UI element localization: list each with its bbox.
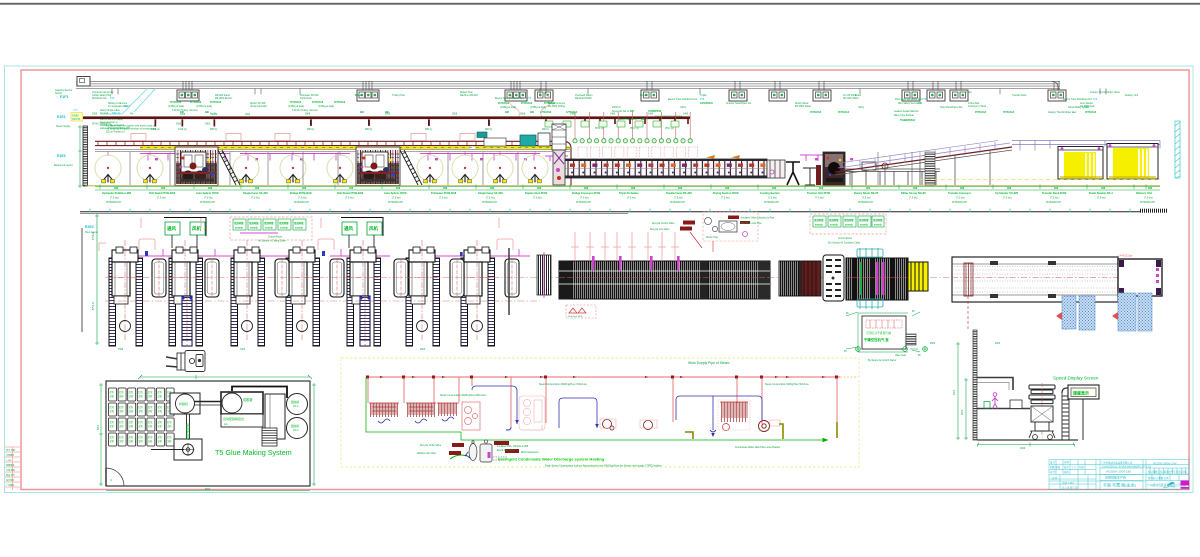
svg-text:WJ250-2500-2-W: WJ250-2500-2-W: [1153, 462, 1177, 466]
svg-text:(1.85kg at load): (1.85kg at load): [196, 105, 212, 108]
svg-text:通风: 通风: [344, 225, 353, 232]
svg-text:吊顶风管: 吊顶风管: [234, 221, 244, 225]
svg-text:998: 998: [584, 187, 589, 190]
svg-text:Auto Stacker: Auto Stacker: [1080, 102, 1093, 105]
svg-text:Triple Drum: Triple Drum: [300, 97, 312, 100]
svg-text:Dry Section Air Condition Cabi: Dry Section Air Condition Cabin: [828, 242, 861, 245]
svg-text:(7.5 kw): (7.5 kw): [157, 197, 166, 200]
svg-text:Boiler Equipment: Boiler Equipment: [521, 451, 539, 454]
svg-text:05TB-BA8: 05TB-BA8: [334, 101, 346, 104]
svg-text:Steam Supply: Steam Supply: [56, 125, 71, 128]
svg-text:xxxx中: xxxx中: [280, 226, 288, 230]
svg-text:(7.5 kw): (7.5 kw): [486, 197, 495, 200]
svg-text:Canopy Thermit/Upper Home: Canopy Thermit/Upper Home: [1090, 91, 1121, 94]
svg-text:5YZ: 5YZ: [527, 98, 532, 100]
svg-text:阶段标记 重量 比例: 阶段标记 重量 比例: [1148, 476, 1169, 480]
svg-text:05YL (1): 05YL (1): [665, 128, 674, 130]
svg-text:GUANGZHOU JUNDA MACHINERY CO.,: GUANGZHOU JUNDA MACHINERY CO.,LTD: [1102, 466, 1151, 469]
svg-text:998 (1): 998 (1): [365, 129, 373, 131]
svg-text:通风: 通风: [167, 225, 176, 232]
svg-text:吊顶风管: 吊顶风管: [844, 218, 854, 222]
svg-text:储胶罐: 储胶罐: [291, 400, 299, 404]
svg-text:not construct the grand minimu: not construct the grand minimum oil cont…: [106, 128, 157, 131]
svg-text:Electro Trace Distributor box: Electro Trace Distributor box: [1063, 98, 1093, 101]
svg-text:12TB-BA8: 12TB-BA8: [540, 111, 552, 114]
svg-text:Blowdown Link Pipe: Blowdown Link Pipe: [741, 223, 762, 225]
svg-text:Auto Splicer 05YB: Auto Splicer 05YB: [384, 191, 407, 195]
svg-text:TSHEEPRS16: TSHEEPRS16: [900, 120, 916, 122]
svg-text:4000: 4000: [995, 343, 1001, 345]
svg-text:瓦楞纸板生产线: 瓦楞纸板生产线: [1105, 475, 1126, 480]
svg-text:1982: 1982: [176, 124, 182, 126]
svg-text:05TB-BA8: 05TB-BA8: [838, 111, 850, 114]
svg-text:0.45 Per Trolley I Service: 0.45 Per Trolley I Service: [292, 109, 318, 112]
svg-text:Trace: Trace: [966, 91, 973, 94]
svg-text:Intelligent Condensate Water D: Intelligent Condensate Water Discharge s…: [498, 457, 605, 462]
svg-text:998: 998: [1101, 187, 1106, 190]
svg-text:Auto Splicer 05YB: Auto Splicer 05YB: [196, 191, 219, 195]
svg-text:mobile Safety Plug: mobile Safety Plug: [92, 94, 112, 97]
svg-text:校对: 校对: [1064, 465, 1069, 469]
svg-text:Recycle Control Valve: Recycle Control Valve: [652, 222, 675, 225]
svg-text:998: 998: [349, 187, 354, 190]
svg-text:05TB-BA8: 05TB-BA8: [1003, 111, 1015, 114]
svg-text:(4 kw) Automatic: (4 kw) Automatic: [250, 105, 268, 108]
svg-text:Control Room: Control Room: [838, 237, 852, 240]
svg-text:广州市骏达包装设备有限公司: 广州市骏达包装设备有限公司: [1101, 461, 1133, 465]
svg-text:5YZ: 5YZ: [700, 99, 705, 101]
svg-text:5YZ: 5YZ: [922, 99, 927, 101]
svg-text:05TB-BA8: 05TB-BA8: [498, 102, 510, 105]
svg-text:998 (1): 998 (1): [542, 129, 550, 131]
svg-text:Transfer Deck: Transfer Deck: [1012, 94, 1027, 97]
svg-text:N25YB: N25YB: [72, 117, 80, 121]
svg-text:Roll Stand 05YB-BA8: Roll Stand 05YB-BA8: [337, 191, 364, 195]
svg-text:05TB-BA8: 05TB-BA8: [290, 101, 302, 104]
svg-text:(7.5 kw): (7.5 kw): [110, 197, 119, 200]
svg-text:12P&5P&18: 12P&5P&18: [700, 103, 713, 105]
svg-text:7000: 7000: [118, 349, 124, 351]
svg-text:05TB-BA8: 05TB-BA8: [312, 101, 324, 104]
svg-text:6500: 6500: [420, 349, 426, 351]
svg-text:会 签: 会 签: [1052, 476, 1058, 480]
svg-text:5200: 5200: [98, 424, 100, 430]
svg-text:Insulated Valve Chamber in Pip: Insulated Valve Chamber in Pipe: [741, 217, 775, 220]
svg-text:Air Suction in Ceiling Cabin: Air Suction in Ceiling Cabin: [258, 240, 287, 243]
svg-text:Brake: Brake: [640, 94, 647, 97]
svg-text:Steam Trap Set of: Steam Trap Set of: [618, 118, 637, 121]
svg-text:Duplex Glue: Duplex Glue: [460, 92, 473, 94]
svg-text:(7.5 kw): (7.5 kw): [345, 197, 354, 200]
svg-text:E1E1: E1E1: [57, 154, 66, 158]
svg-text:拌胶机: 拌胶机: [179, 401, 188, 406]
svg-text:设 计: 设 计: [1050, 460, 1056, 464]
svg-text:风机: 风机: [369, 225, 378, 232]
svg-text:05TB-BA8 25Y: 05TB-BA8 25Y: [294, 201, 310, 204]
svg-text:Steam Consumption 600Kg/Hour 5: Steam Consumption 600Kg/Hour 50m/Line: [765, 383, 810, 386]
svg-text:05TB-BA8 25Y: 05TB-BA8 25Y: [1140, 201, 1156, 204]
svg-text:E1E1: E1E1: [57, 115, 66, 119]
svg-text:Canopy Thermit/Upper later: Canopy Thermit/Upper later: [1048, 111, 1077, 114]
svg-text:xxxx中: xxxx中: [235, 226, 243, 230]
svg-text:1440 (1): 1440 (1): [178, 129, 187, 131]
svg-text:Wire Safety Service: Wire Safety Service: [898, 102, 919, 105]
svg-text:05YB CHMWBFAL: 05YB CHMWBFAL: [92, 123, 112, 126]
svg-text:(7.5 kw): (7.5 kw): [392, 197, 401, 200]
svg-text:xxxx中: xxxx中: [845, 223, 853, 227]
svg-text:998: 998: [819, 187, 824, 190]
svg-text:Traction Unit 05YB: Traction Unit 05YB: [807, 191, 830, 195]
svg-text:(1.85kg at load): (1.85kg at load): [288, 105, 304, 108]
svg-text:Roll Stand 05YB-BA8: Roll Stand 05YB-BA8: [149, 191, 176, 195]
svg-text:空压机 冷干机 储气罐: 空压机 冷干机 储气罐: [866, 331, 891, 335]
svg-text:Drying Section 05YB: Drying Section 05YB: [713, 191, 739, 195]
svg-text:05TB-BA8 25Y: 05TB-BA8 25Y: [952, 201, 968, 204]
svg-text:Recycle Inlet Valve: Recycle Inlet Valve: [650, 228, 670, 231]
svg-text:No.2: No.2: [293, 428, 299, 432]
svg-text:998: 998: [396, 187, 401, 190]
svg-text:WJ250K-2500-180: WJ250K-2500-180: [1106, 470, 1131, 474]
svg-text:E2E2: E2E2: [85, 225, 94, 229]
svg-text:380V: 380V: [124, 105, 130, 108]
svg-text:998 (1): 998 (1): [307, 129, 315, 131]
svg-text:(7.5 kw): (7.5 kw): [1003, 197, 1012, 200]
svg-text:235mm?: 235mm?: [612, 107, 622, 109]
svg-text:2868: 2868: [385, 114, 391, 116]
svg-text:Up Stacker US-320: Up Stacker US-320: [995, 191, 1019, 195]
svg-text:Rotary Shear RS-25: Rotary Shear RS-25: [854, 191, 879, 195]
svg-text:成胶罐: 成胶罐: [243, 397, 253, 402]
svg-text:Flash Steam Consumption is abo: Flash Steam Consumption is about 4kg,pro…: [545, 465, 662, 468]
svg-text:Bridge Conveyor: Bridge Conveyor: [548, 102, 565, 105]
svg-text:(7.5 kw): (7.5 kw): [439, 197, 448, 200]
svg-text:Valve Seat: Valve Seat: [895, 354, 906, 357]
svg-text:Condensate Water Main Pipe Low: Condensate Water Main Pipe Lower Bracket: [735, 446, 781, 449]
svg-text:Single Facer SF-320: Single Facer SF-320: [478, 191, 503, 195]
svg-text:05TB-BA8 25Y: 05TB-BA8 25Y: [764, 201, 780, 204]
svg-text:吊顶风管: 吊顶风管: [294, 221, 304, 225]
svg-text:998 (1): 998 (1): [210, 129, 218, 131]
svg-text:(7.5 kw): (7.5 kw): [862, 197, 871, 200]
svg-text:吊顶风管: 吊顶风管: [279, 221, 289, 225]
svg-text:吊顶风管: 吊顶风管: [859, 218, 869, 222]
svg-text:标记处数 分区 更改文件号 签名 日期: 标记处数 分区 更改文件号 签名 日期: [1148, 470, 1187, 474]
svg-text:工 艺: 工 艺: [1071, 465, 1077, 469]
svg-text:Insulated 50th. Chloride is 99: Insulated 50th. Chloride is 998: [497, 445, 529, 448]
svg-text:吊顶风管: 吊顶风管: [249, 221, 259, 225]
svg-text:Speed Display Screen: Speed Display Screen: [1053, 376, 1099, 381]
svg-text:10 mm2: 10 mm2: [100, 113, 109, 115]
svg-text:05TB-BA8 25Y: 05TB-BA8 25Y: [858, 201, 874, 204]
svg-text:Rc ***: Rc ***: [210, 114, 216, 116]
svg-text:Overhead Steam: Overhead Steam: [575, 94, 592, 97]
svg-text:RS-2500 Spiral: RS-2500 Spiral: [795, 105, 811, 108]
svg-text:Double Facer DF-320: Double Facer DF-320: [666, 191, 692, 195]
svg-text:Down Stacker DS-1: Down Stacker DS-1: [1089, 191, 1113, 195]
svg-text:xxxx中: xxxx中: [860, 223, 868, 227]
svg-text:1085: 1085: [180, 114, 186, 116]
svg-text:998: 998: [255, 187, 260, 190]
svg-text:DN80: DN80: [72, 114, 79, 118]
svg-text:Insulation Note: the pipeline: Insulation Note: the pipeline only need …: [106, 125, 157, 128]
svg-text:(7.5 kw): (7.5 kw): [768, 197, 777, 200]
svg-text:998: 998: [161, 187, 166, 190]
svg-text:05TB-BA8 25Y: 05TB-BA8 25Y: [1046, 201, 1062, 204]
svg-text:Bridge Conveyor 05YB: Bridge Conveyor 05YB: [572, 191, 600, 195]
svg-text:Duplex Glue 05YB: Duplex Glue 05YB: [525, 191, 547, 195]
svg-text:5YZ: 5YZ: [1093, 99, 1098, 101]
svg-text:Incline Belt: Incline Belt: [968, 102, 980, 105]
svg-text:RS-2500 Electric: RS-2500 Electric: [215, 97, 233, 100]
svg-text:Distributor box: Distributor box: [92, 97, 108, 100]
svg-text:Trolley Hoist: Trolley Hoist: [392, 94, 405, 97]
svg-text:Conveyor (7.5kw): Conveyor (7.5kw): [968, 105, 986, 108]
svg-text:05TB-BA8 25Y: 05TB-BA8 25Y: [200, 201, 216, 204]
svg-text:998: 998: [725, 187, 730, 190]
svg-text:1985: 1985: [92, 114, 98, 116]
svg-text:Glue Unit 450L: Glue Unit 450L: [568, 315, 583, 318]
svg-text:(10m): (10m): [680, 107, 686, 109]
svg-text:AS-2500 Dual: AS-2500 Dual: [1080, 105, 1095, 108]
svg-text:998: 998: [866, 187, 871, 190]
svg-text:吊顶风管: 吊顶风管: [829, 218, 839, 222]
svg-text:5YZ: 5YZ: [110, 97, 115, 100]
svg-text:Work Supply Pipe of Steam: Work Supply Pipe of Steam: [688, 361, 730, 365]
svg-text:6000: 6000: [954, 389, 956, 395]
svg-text:998: 998: [114, 187, 119, 190]
svg-text:标准: 标准: [1079, 465, 1084, 469]
svg-text:风机: 风机: [192, 225, 201, 232]
svg-text:Transfer Deck 05YB: Transfer Deck 05YB: [1042, 191, 1066, 195]
svg-text:05TB-BA8 25Y: 05TB-BA8 25Y: [670, 201, 686, 204]
svg-text:Cut Off Knife: Cut Off Knife: [843, 94, 857, 97]
svg-text:Bridge 05YB-BA8: Bridge 05YB-BA8: [290, 191, 312, 195]
svg-text:998: 998: [960, 187, 965, 190]
svg-text:(7.5 kw): (7.5 kw): [956, 197, 965, 200]
svg-text:1093: 1093: [245, 114, 251, 116]
svg-text:2868: 2868: [520, 114, 526, 116]
svg-text:Brand Fuel in pot: Brand Fuel in pot: [497, 449, 515, 452]
svg-text:(7.5 kw): (7.5 kw): [298, 197, 307, 200]
svg-text:5750.00: 5750.00: [93, 231, 95, 240]
svg-text:No.1: No.1: [293, 404, 299, 408]
svg-text:(7.5 kw): (7.5 kw): [580, 197, 589, 200]
svg-text:1:100: 1:100: [6, 460, 12, 462]
svg-text:998: 998: [1148, 187, 1153, 190]
svg-text:xxxx中: xxxx中: [295, 226, 303, 230]
svg-text:(7.5 kw): (7.5 kw): [721, 197, 730, 200]
svg-text:(10m): (10m): [858, 107, 864, 109]
svg-text:7000: 7000: [240, 349, 246, 351]
svg-text:05TB-BA8 25Y: 05TB-BA8 25Y: [482, 201, 498, 204]
svg-text:共 1 张 第 1 张: 共 1 张 第 1 张: [1062, 486, 1078, 490]
svg-text:1480: 1480: [648, 114, 654, 116]
svg-text:1480: 1480: [610, 114, 616, 116]
svg-text:998: 998: [208, 187, 213, 190]
svg-text:Valve: Valve: [73, 110, 79, 112]
svg-text:速度显示: 速度显示: [1073, 390, 1089, 396]
svg-text:2500: 2500: [930, 343, 936, 345]
svg-text:05TB-BA8: 05TB-BA8: [210, 101, 222, 104]
svg-text:0.45 Per Trolley I Service: 0.45 Per Trolley I Service: [172, 109, 198, 112]
svg-text:Control Room: Control Room: [268, 236, 282, 239]
svg-text:制图 审核: 制图 审核: [1050, 465, 1061, 469]
svg-text:Delivery Unit: Delivery Unit: [1136, 191, 1152, 195]
svg-text:Preheater 05YB-BA8: Preheater 05YB-BA8: [431, 191, 457, 195]
svg-text:05TB-BA8: 05TB-BA8: [190, 101, 202, 104]
svg-text:05TB-BA8: 05TB-BA8: [975, 111, 987, 114]
svg-text:05TB-BA8 25Y: 05TB-BA8 25Y: [388, 201, 404, 204]
svg-text:xxxx中: xxxx中: [874, 223, 882, 227]
svg-text:比例 1:100: 比例 1:100: [1062, 481, 1074, 485]
svg-text:998 (1): 998 (1): [485, 129, 493, 131]
svg-text:05TB-BA8: 05TB-BA8: [1085, 111, 1097, 114]
svg-text:吊顶风管: 吊顶风管: [873, 218, 883, 222]
svg-text:xxxx中: xxxx中: [830, 223, 838, 227]
svg-text:998: 998: [443, 187, 448, 190]
svg-text:05TB-BA8 25Y: 05TB-BA8 25Y: [576, 201, 592, 204]
svg-text:Electro Trace Distributor box: Electro Trace Distributor box: [495, 97, 525, 100]
svg-text:998: 998: [1007, 187, 1012, 190]
svg-text:998: 998: [490, 187, 495, 190]
svg-text:998: 998: [678, 187, 683, 190]
svg-text:By-Series de Control Factor: By-Series de Control Factor: [868, 359, 897, 362]
svg-text:998: 998: [302, 187, 307, 190]
svg-text:(7.5 kw): (7.5 kw): [204, 197, 213, 200]
svg-text:Rotary Shear: Rotary Shear: [795, 102, 809, 105]
svg-text:Single Facer SF-320: Single Facer SF-320: [243, 191, 268, 195]
svg-text:T5 Glue Making System: T5 Glue Making System: [215, 448, 292, 457]
svg-text:Machine GM-318: Machine GM-318: [460, 95, 478, 97]
svg-text:Mill Roll Stand: Mill Roll Stand: [215, 94, 230, 97]
svg-text:Alkaline Inlet Valve: Alkaline Inlet Valve: [417, 452, 437, 455]
svg-text:05TB-BA8: 05TB-BA8: [810, 111, 822, 114]
svg-text:05YL (1): 05YL (1): [595, 128, 604, 130]
svg-text:NC-318 (45kw): NC-318 (45kw): [843, 98, 859, 100]
svg-text:xxxx中: xxxx中: [815, 223, 823, 227]
svg-text:Cinema Travel/Open line: Cinema Travel/Open line: [726, 102, 752, 105]
svg-text:05TB-BA8: 05TB-BA8: [521, 102, 533, 105]
svg-text:(1.85kg at load): (1.85kg at load): [530, 106, 546, 109]
svg-text:审 定: 审 定: [1050, 470, 1056, 474]
svg-text:Triple Preheater: Triple Preheater: [619, 191, 639, 195]
svg-text:5750.00: 5750.00: [93, 301, 95, 310]
svg-text:49kE (1): 49kE (1): [151, 129, 160, 131]
svg-text:吊顶风管: 吊顶风管: [264, 221, 274, 225]
svg-text:05TB-BA8: 05TB-BA8: [170, 101, 182, 104]
svg-text:F1F1: F1F1: [60, 95, 68, 99]
svg-text:Recycle Outlet Valve: Recycle Outlet Valve: [420, 444, 442, 447]
svg-text:22Cos Thanks a 5: 22Cos Thanks a 5: [106, 132, 125, 134]
svg-text:批准: 批准: [1064, 470, 1069, 474]
svg-text:广州骏达包装设备有限公司出品: 广州骏达包装设备有限公司出品: [1147, 483, 1186, 487]
svg-text:1480: 1480: [683, 114, 689, 116]
svg-text:Hydraulic Shaftless Mill: Hydraulic Shaftless Mill: [102, 191, 131, 195]
svg-text:xxxx中: xxxx中: [265, 226, 273, 230]
svg-text:998 (1): 998 (1): [425, 129, 433, 131]
svg-text:05YL (1): 05YL (1): [630, 128, 639, 130]
svg-text:Delivery Unit: Delivery Unit: [1125, 94, 1138, 97]
svg-text:2868: 2868: [452, 114, 458, 116]
svg-text:Floor Layout: Floor Layout: [85, 231, 98, 234]
svg-text:998: 998: [772, 187, 777, 190]
svg-text:(1.85kg at load): (1.85kg at load): [500, 106, 516, 109]
svg-text:Equipment Layout: Equipment Layout: [54, 164, 73, 167]
svg-text:(7.5 kw): (7.5 kw): [1097, 197, 1106, 200]
svg-text:BC-2500 (5.5kw): BC-2500 (5.5kw): [548, 106, 565, 108]
svg-text:Electro Trace Distributor box: Electro Trace Distributor box: [668, 98, 698, 101]
svg-text:Hoop Panel/Open line: Hoop Panel/Open line: [940, 107, 963, 109]
svg-text:Brake: Brake: [355, 94, 362, 97]
svg-text:998: 998: [631, 187, 636, 190]
svg-text:1449.5Zq/r: 1449.5Zq/r: [1118, 254, 1133, 258]
svg-text:1982: 1982: [205, 124, 211, 126]
svg-text:998: 998: [1054, 187, 1059, 190]
svg-text:Conductor rail for the: Conductor rail for the: [92, 91, 114, 94]
svg-text:(7.5 kw): (7.5 kw): [909, 197, 918, 200]
svg-text:Cooling Section: Cooling Section: [760, 191, 780, 195]
svg-text:2000: 2000: [1020, 448, 1026, 450]
svg-text:Transfer Conveyor: Transfer Conveyor: [948, 191, 971, 195]
svg-text:(7.5 kw): (7.5 kw): [815, 197, 824, 200]
svg-text:(7.5 kw): (7.5 kw): [627, 197, 636, 200]
svg-text:8000: 8000: [205, 489, 211, 491]
svg-text:05TB-BA8 25Y: 05TB-BA8 25Y: [106, 201, 122, 204]
svg-text:xxxx中: xxxx中: [250, 226, 258, 230]
svg-text:Capacity Service: Capacity Service: [55, 89, 73, 92]
svg-text:Leaders Austeril Electric: Leaders Austeril Electric: [894, 110, 919, 113]
svg-text:Steam Consumption 4000(Kg)/Hou: Steam Consumption 4000(Kg)/Hour 700m/Lin…: [539, 383, 588, 386]
svg-text:Manifold DN150: Manifold DN150: [575, 98, 592, 100]
svg-text:(7.5 kw): (7.5 kw): [1144, 197, 1153, 200]
svg-text:(7.5 kw): (7.5 kw): [1050, 197, 1059, 200]
svg-text:Steam Trap: Steam Trap: [706, 236, 719, 239]
svg-text:(7.5 kw): (7.5 kw): [674, 197, 683, 200]
svg-text:干燥空压机气 室: 干燥空压机气 室: [864, 337, 889, 342]
svg-text:998: 998: [913, 187, 918, 190]
svg-text:Many Type Periode: Many Type Periode: [894, 114, 914, 117]
svg-text:平面 布置 图(金龙): 平面 布置 图(金龙): [1103, 482, 1137, 488]
svg-text:Slitter Scorer NC-80: Slitter Scorer NC-80: [901, 191, 926, 195]
svg-text:Splicer SP-318: Splicer SP-318: [250, 102, 266, 105]
svg-text:自动配胶联控台: 自动配胶联控台: [223, 416, 244, 421]
svg-text:储胶罐: 储胶罐: [291, 424, 299, 428]
svg-text:吊顶风管: 吊顶风管: [814, 218, 824, 222]
svg-text:制胶房配胶: 制胶房配胶: [185, 422, 190, 440]
svg-text:Steam Consumption 9000Kg/Hour: Steam Consumption 9000Kg/Hour 800m/Line: [440, 394, 487, 397]
svg-text:(1.85kg at load): (1.85kg at load): [318, 105, 334, 108]
svg-text:3500: 3500: [962, 409, 964, 415]
svg-text:2868: 2868: [305, 114, 311, 116]
svg-text:Trolley: Trolley: [700, 94, 708, 97]
svg-text:(7.5 kw): (7.5 kw): [251, 197, 260, 200]
svg-text:998: 998: [537, 187, 542, 190]
svg-text:Parts Gear Declarator box: Parts Gear Declarator box: [895, 98, 923, 101]
svg-text:KBK-T2: KBK-T2: [112, 112, 121, 115]
svg-text:(1.85kg at load): (1.85kg at load): [168, 105, 184, 108]
svg-text:12TB-BA8: 12TB-BA8: [566, 111, 578, 114]
svg-text:Preheater PR-900: Preheater PR-900: [300, 94, 319, 97]
svg-text:(7.5 kw): (7.5 kw): [533, 197, 542, 200]
svg-text:日期: 日期: [1064, 460, 1069, 464]
